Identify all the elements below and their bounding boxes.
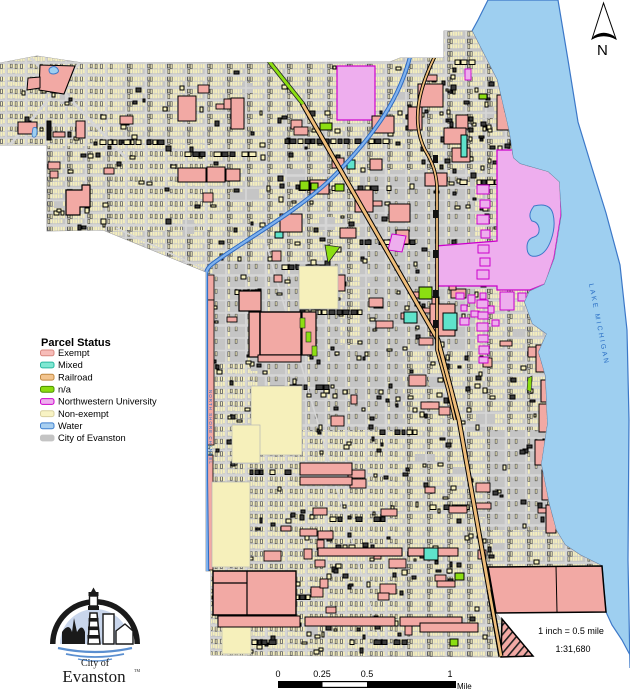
svg-text:Non-exempt: Non-exempt [58,409,109,419]
svg-text:Railroad: Railroad [58,372,93,382]
svg-text:Mixed: Mixed [58,360,83,370]
svg-text:1 inch = 0.5 mile: 1 inch = 0.5 mile [538,626,604,636]
svg-text:n/a: n/a [58,384,72,394]
svg-text:City of Evanston: City of Evanston [58,433,126,443]
svg-text:1:31,680: 1:31,680 [555,644,590,654]
svg-text:Northwestern University: Northwestern University [58,397,157,407]
svg-text:0.25: 0.25 [313,669,331,679]
svg-text:Water: Water [58,421,82,431]
svg-text:Exempt: Exempt [58,348,90,358]
svg-text:1: 1 [447,669,452,679]
svg-text:Evanston: Evanston [62,667,126,686]
svg-text:0.5: 0.5 [361,669,374,679]
svg-text:NORTH SHORE CHANNEL: NORTH SHORE CHANNEL [208,390,213,465]
svg-text:Mile: Mile [457,682,472,690]
svg-text:0: 0 [275,669,280,679]
svg-text:TM: TM [134,668,140,673]
svg-text:N: N [597,42,608,59]
